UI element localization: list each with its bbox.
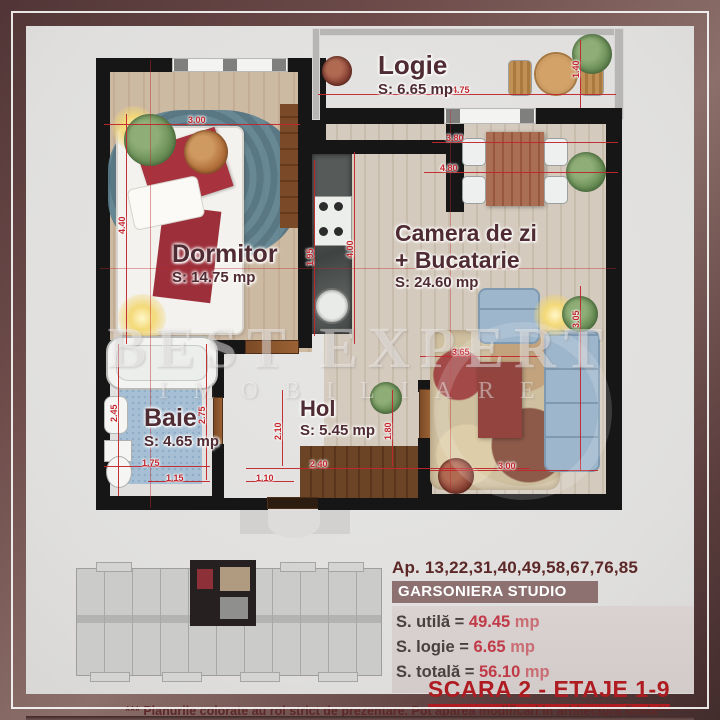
- building-level-miniplan: [70, 556, 388, 686]
- highlighted-unit-bedroom: [197, 569, 213, 589]
- area-unit: mp: [515, 613, 540, 631]
- wall-top-1: [96, 58, 172, 72]
- toilet-bowl: [106, 456, 132, 488]
- wall-loggia-living-2: [536, 108, 622, 124]
- dim-sofa-h: 3.05: [572, 310, 581, 328]
- dining-table: [486, 132, 544, 206]
- wall-bathroom-bottom: [96, 496, 224, 510]
- area-value: 6.65: [474, 638, 506, 656]
- loggia-parapet-left: [312, 28, 320, 120]
- dim-hol-w1: 2.40: [310, 460, 328, 469]
- label-hol: Hol S: 5.45 mp: [300, 396, 375, 439]
- wall-living-right: [606, 108, 622, 510]
- wall-bathroom-right-2: [212, 444, 224, 498]
- loggia-parapet-right: [614, 28, 624, 120]
- living-door: [420, 390, 430, 438]
- kitchen-hob: [314, 196, 352, 246]
- dim-logie-d: 1.40: [572, 60, 581, 78]
- loggia-chair-left: [508, 60, 532, 96]
- loggia-parapet-top: [318, 28, 620, 36]
- dim-hol-h1: 2.10: [274, 422, 283, 440]
- dim-kitchen-l: 4.00: [346, 240, 355, 258]
- wall-hallway-bottom-1: [224, 498, 268, 510]
- living-loggia-window: [444, 108, 536, 124]
- wall-bedroom-right: [298, 58, 312, 348]
- floor-plan-poster: 3.00 4.75 1.40 4.40 3.80 4.80 4.00 1.95 …: [0, 0, 720, 720]
- bedroom-door: [246, 341, 298, 353]
- highlighted-unit-living: [220, 567, 250, 591]
- highlighted-unit-hall: [220, 597, 248, 619]
- dim-bedroom-h: 4.40: [118, 216, 127, 234]
- balcony-bump-5: [162, 672, 202, 682]
- balcony-bump-6: [240, 672, 280, 682]
- bathtub: [106, 336, 218, 390]
- baie-area: S: 4.65 mp: [144, 433, 219, 450]
- baie-name: Baie: [144, 404, 219, 433]
- apartment-numbers: Ap. 13,22,31,40,49,58,67,76,85: [392, 558, 692, 578]
- loggia-table: [536, 54, 576, 94]
- label-dormitor: Dormitor S: 14.75 mp: [172, 240, 278, 286]
- logie-area: S: 6.65 mp: [378, 81, 453, 98]
- label-baie: Baie S: 4.65 mp: [144, 404, 219, 450]
- balcony-bump-2: [280, 562, 316, 572]
- area-row-logie: S. logie = 6.65 mp: [396, 635, 686, 660]
- hol-area: S: 5.45 mp: [300, 422, 375, 439]
- staircase-floors-label: SCARA 2 - ETAJE 1-9: [428, 676, 670, 707]
- dim-baie-w1: 1.75: [142, 459, 160, 468]
- area-value: 49.45: [469, 613, 510, 631]
- dim-kitchen-w: 1.95: [306, 248, 315, 266]
- loggia-plant-small: [322, 56, 352, 86]
- highlighted-unit: [190, 560, 256, 626]
- dim-bedroom-w: 3.00: [188, 116, 206, 125]
- area-unit: mp: [510, 638, 535, 656]
- living-name-2: + Bucatarie: [395, 247, 537, 274]
- bedroom-plant-orange: [184, 130, 228, 174]
- dim-baie-h1: 2.45: [110, 404, 119, 422]
- poster-background: 3.00 4.75 1.40 4.40 3.80 4.80 4.00 1.95 …: [26, 26, 694, 694]
- kitchen-sink: [314, 288, 350, 324]
- living-area: S: 24.60 mp: [395, 274, 537, 291]
- watermark-ring: [434, 322, 612, 500]
- label-living: Camera de zi + Bucatarie S: 24.60 mp: [395, 220, 537, 291]
- entrance-door: [268, 498, 318, 508]
- dormitor-name: Dormitor: [172, 240, 278, 269]
- bedroom-wardrobe: [280, 104, 298, 228]
- dim-living-w2: 4.80: [440, 164, 458, 173]
- balcony-bump-1: [96, 562, 132, 572]
- bottom-divider-band: [26, 716, 694, 720]
- area-row-utila: S. utilă = 49.45 mp: [396, 610, 686, 635]
- area-label: S. utilă =: [396, 613, 464, 631]
- balcony-bump-3: [328, 562, 364, 572]
- dim-hol-w2: 1.10: [256, 474, 274, 483]
- unit-type-badge: GARSONIERA STUDIO: [392, 581, 598, 603]
- dining-chair-4: [544, 176, 568, 204]
- hallway-wardrobe: [300, 446, 418, 498]
- label-logie: Logie S: 6.65 mp: [378, 50, 453, 98]
- dormitor-area: S: 14.75 mp: [172, 269, 278, 286]
- balcony-bump-7: [318, 672, 358, 682]
- logie-name: Logie: [378, 50, 453, 81]
- living-name-1: Camera de zi: [395, 220, 537, 247]
- dim-hol-h2: 1.80: [384, 422, 393, 440]
- apartment-info-box: Ap. 13,22,31,40,49,58,67,76,85 GARSONIER…: [392, 558, 692, 693]
- balcony-bump-4: [90, 672, 130, 682]
- hol-name: Hol: [300, 396, 375, 422]
- bedroom-window: [172, 58, 288, 72]
- entrance-door-swing: [268, 508, 320, 538]
- area-label: S. logie =: [396, 638, 469, 656]
- wall-hallway-bottom-2: [318, 498, 430, 510]
- dining-chair-2: [462, 176, 486, 204]
- dim-logie-w: 4.75: [452, 86, 470, 95]
- dim-living-w1: 3.80: [446, 134, 464, 143]
- wall-loggia-living-1: [324, 108, 444, 124]
- dim-baie-w2: 1.15: [166, 474, 184, 483]
